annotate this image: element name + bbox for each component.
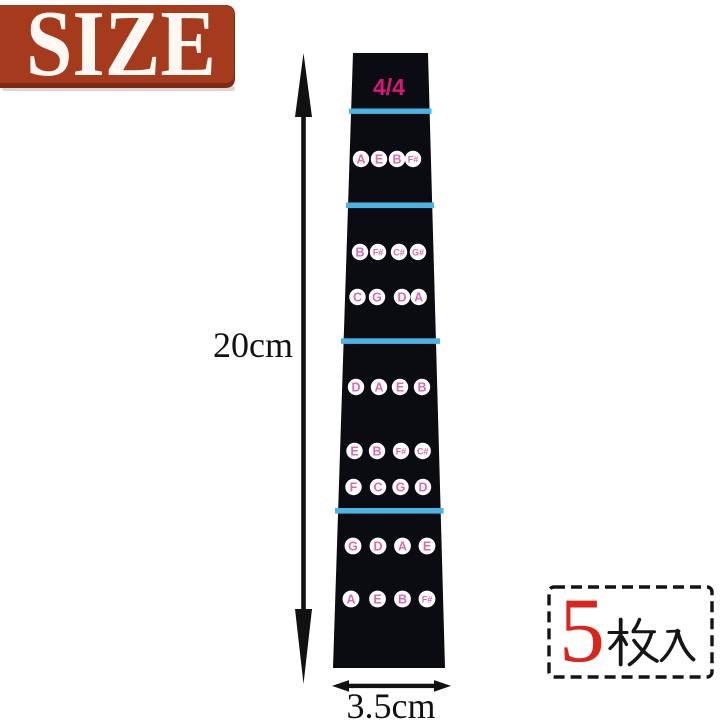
svg-text:A: A [414, 291, 423, 305]
svg-text:E: E [373, 593, 381, 607]
svg-text:D: D [373, 540, 382, 554]
svg-text:B: B [398, 593, 407, 607]
svg-text:E: E [423, 540, 431, 554]
svg-text:5: 5 [559, 579, 605, 681]
svg-text:20cm: 20cm [213, 325, 293, 365]
svg-text:A: A [398, 540, 407, 554]
svg-text:C#: C# [393, 248, 405, 258]
svg-text:D: D [351, 381, 360, 395]
svg-text:F#: F# [373, 248, 384, 258]
svg-text:E: E [350, 445, 358, 459]
svg-text:A: A [346, 593, 355, 607]
svg-text:G: G [372, 291, 382, 305]
svg-text:F: F [350, 481, 358, 495]
svg-text:B: B [417, 381, 426, 395]
svg-text:B: B [392, 153, 401, 167]
svg-text:D: D [418, 481, 427, 495]
svg-text:G: G [396, 481, 406, 495]
svg-text:F#: F# [422, 595, 433, 605]
svg-text:SIZE: SIZE [26, 0, 216, 96]
svg-text:B: B [355, 246, 364, 260]
svg-text:F#: F# [408, 155, 419, 165]
svg-text:3.5cm: 3.5cm [347, 686, 436, 720]
svg-text:G: G [348, 540, 358, 554]
svg-text:C: C [353, 291, 362, 305]
svg-text:G#: G# [412, 248, 424, 258]
svg-text:4/4: 4/4 [373, 74, 405, 100]
svg-text:D: D [397, 291, 406, 305]
svg-text:E: E [375, 153, 383, 167]
svg-text:C#: C# [417, 447, 429, 457]
svg-text:E: E [396, 381, 404, 395]
svg-text:A: A [374, 381, 383, 395]
svg-text:F#: F# [396, 447, 407, 457]
svg-text:C: C [373, 481, 382, 495]
svg-text:A: A [356, 153, 365, 167]
svg-text:B: B [372, 445, 381, 459]
